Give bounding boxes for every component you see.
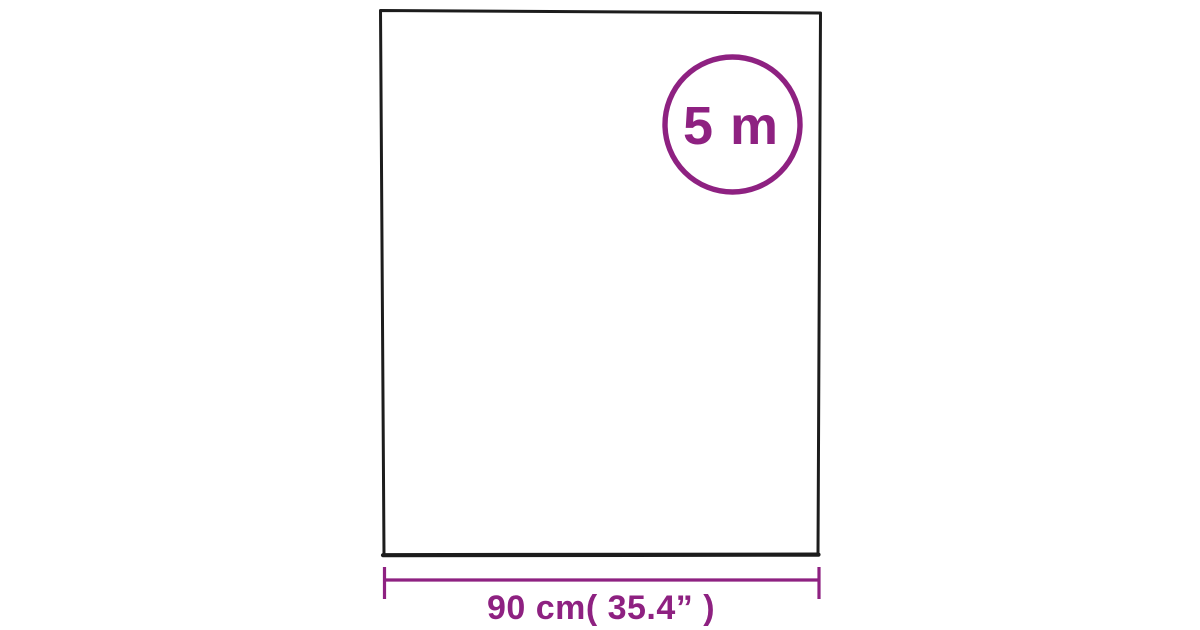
diagram-canvas: 5 m 90 cm( 35.4” ) (0, 0, 1200, 630)
film-sheet-bottom-edge (383, 555, 819, 556)
product-dimension-diagram: 5 m 90 cm( 35.4” ) (0, 0, 1200, 630)
width-dimension: 90 cm( 35.4” ) (385, 567, 820, 627)
roll-length-badge: 5 m (665, 57, 800, 192)
roll-length-value: 5 m (683, 96, 779, 156)
width-dimension-label: 90 cm( 35.4” ) (487, 589, 715, 627)
